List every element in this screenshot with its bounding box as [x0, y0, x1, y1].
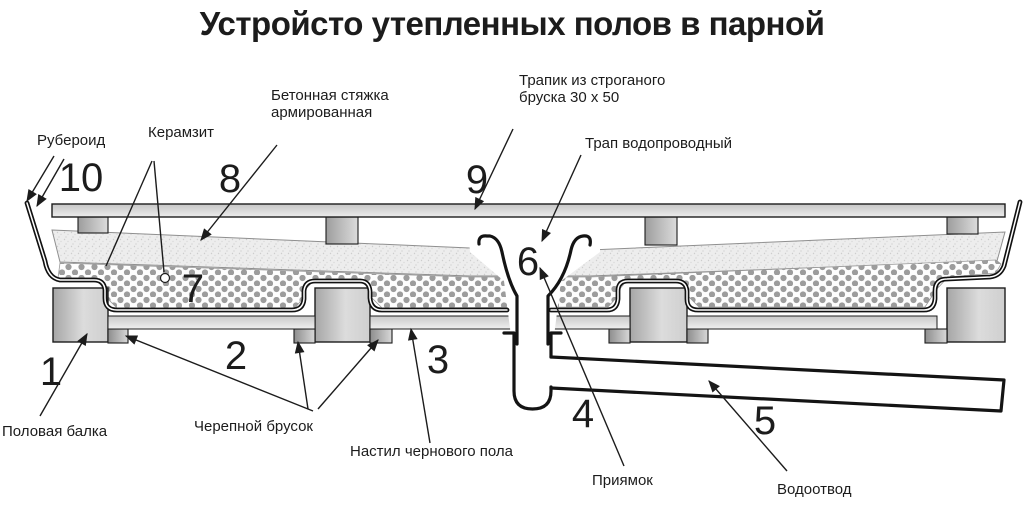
deck-support: [78, 217, 108, 233]
label-pit: Приямок: [592, 473, 653, 490]
label-floor-beam: Половая балка: [2, 424, 107, 441]
floor-beam: [630, 288, 687, 342]
leader-cranial-bar-c: [318, 340, 378, 409]
label-screed: Бетонная стяжка армированная: [271, 88, 389, 122]
cranial-bar: [294, 329, 315, 343]
callout-1-floor-beam: 1: [40, 352, 62, 392]
label-deck-plank: Трапик из строганого бруска 30 х 50: [519, 73, 665, 107]
label-keramzit: Керамзит: [148, 125, 214, 142]
keramzit-granule-marker: [161, 274, 170, 283]
leader-cranial-bar-a: [126, 336, 313, 411]
callout-7-keramzit: 7: [182, 269, 204, 309]
label-drain-trap: Трап водопроводный: [585, 136, 732, 153]
label-drainage: Водоотвод: [777, 482, 852, 499]
callout-3-subfloor: 3: [427, 340, 449, 380]
subfloor-board: [108, 316, 315, 329]
diagram-insulated-floor-steam-room: Устройсто утепленных полов в парной Рубе…: [0, 0, 1024, 516]
callout-2-cranial-bar: 2: [225, 336, 247, 376]
deck-support: [947, 217, 978, 234]
label-cranial-bar: Черепной брусок: [194, 419, 313, 436]
callout-10-ruberoid: 10: [59, 158, 104, 198]
label-ruberoid: Рубероид: [37, 133, 105, 150]
callout-5-drainage: 5: [754, 401, 776, 441]
label-subfloor: Настил чернового пола: [350, 444, 513, 461]
drainage-channel: [551, 357, 1004, 411]
cross-section-drawing: [0, 0, 1024, 516]
deck-support: [645, 217, 677, 245]
callout-6-drain-trap: 6: [517, 242, 539, 282]
floor-beam: [947, 288, 1005, 342]
subfloor-board: [370, 316, 512, 329]
cranial-bar: [370, 329, 392, 343]
callout-9-deck-plank: 9: [466, 160, 488, 200]
floor-beam: [315, 288, 370, 342]
subfloor-board: [687, 316, 937, 329]
leader-cranial-bar-b: [298, 342, 308, 409]
callout-4-pit: 4: [572, 394, 594, 434]
cranial-bar: [925, 329, 947, 343]
diagram-title: Устройсто утепленных полов в парной: [0, 5, 1024, 43]
deck-board: [52, 204, 1005, 217]
cranial-bar: [609, 329, 630, 343]
floor-beam: [53, 288, 108, 342]
cranial-bar: [687, 329, 708, 343]
leader-ruberoid-a: [27, 156, 54, 201]
callout-8-screed: 8: [219, 159, 241, 199]
cranial-bar: [108, 329, 128, 343]
deck-support: [326, 217, 358, 244]
